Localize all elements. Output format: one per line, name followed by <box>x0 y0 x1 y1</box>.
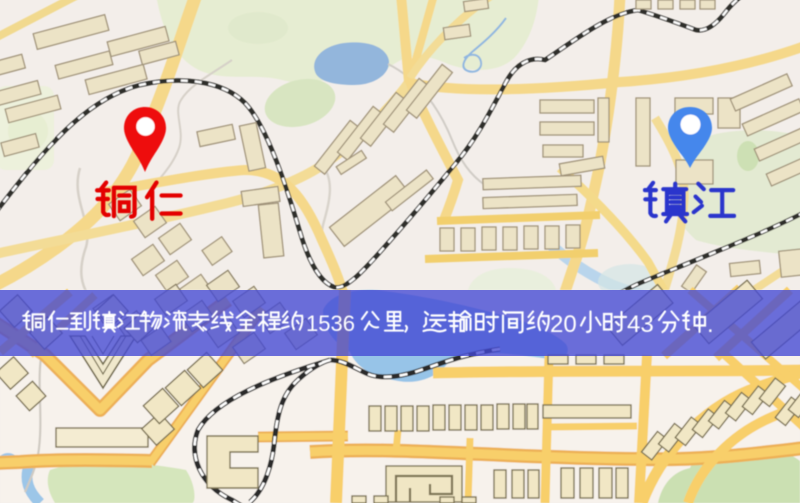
svg-text:.: . <box>707 311 714 338</box>
svg-text:1536: 1536 <box>306 311 355 336</box>
svg-text:20: 20 <box>550 311 577 338</box>
svg-text:43: 43 <box>627 311 654 338</box>
